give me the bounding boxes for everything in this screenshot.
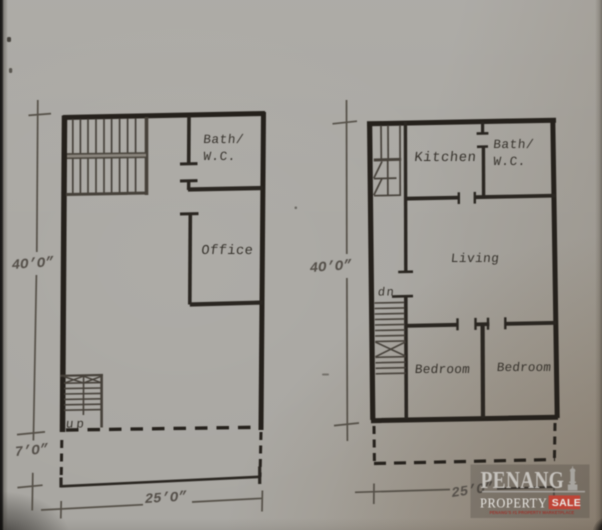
- svg-text:Living: Living: [450, 251, 500, 266]
- svg-text:W.C.: W.C.: [493, 154, 527, 169]
- svg-text:Kitchen: Kitchen: [413, 150, 477, 166]
- svg-text:W.C.: W.C.: [203, 149, 237, 164]
- svg-text:25’O”: 25’O”: [144, 489, 188, 508]
- svg-text:Bedroom: Bedroom: [496, 360, 552, 375]
- svg-text:SALE: SALE: [552, 497, 581, 509]
- svg-text:Bath/: Bath/: [493, 137, 535, 152]
- svg-text:PENANG’S #1 PROPERTY MARKETPLA: PENANG’S #1 PROPERTY MARKETPLACE: [490, 510, 575, 515]
- svg-text:PENANG: PENANG: [481, 467, 565, 493]
- svg-text:4O’O”: 4O’O”: [309, 258, 353, 277]
- svg-text:PROPERTY: PROPERTY: [480, 495, 547, 511]
- svg-text:dn: dn: [377, 286, 396, 300]
- svg-text:4O’O”: 4O’O”: [11, 255, 55, 274]
- svg-text:Office: Office: [200, 244, 254, 259]
- svg-text:Bedroom: Bedroom: [414, 362, 471, 377]
- svg-text:Bath/: Bath/: [203, 132, 245, 147]
- svg-text:7’O”: 7’O”: [14, 442, 49, 461]
